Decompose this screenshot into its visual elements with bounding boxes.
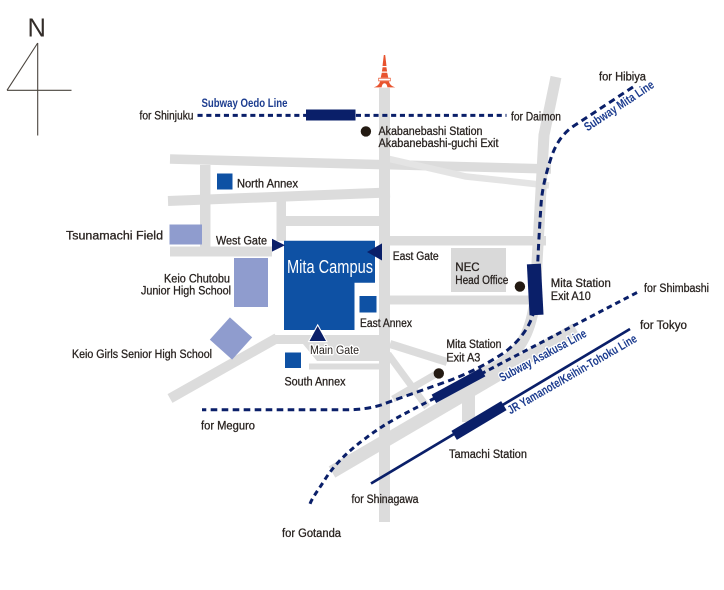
svg-text:Akabanebashi Station: Akabanebashi Station <box>379 126 483 138</box>
svg-text:Mita Station: Mita Station <box>551 278 611 290</box>
svg-text:Akabanebashi-guchi Exit: Akabanebashi-guchi Exit <box>379 138 500 150</box>
svg-text:North Annex: North Annex <box>237 179 298 191</box>
svg-text:Subway Oedo Line: Subway Oedo Line <box>202 96 288 110</box>
svg-text:for Hibiya: for Hibiya <box>599 72 647 84</box>
svg-text:South Annex: South Annex <box>285 377 346 389</box>
svg-text:Keio Girls Senior High School: Keio Girls Senior High School <box>72 349 212 361</box>
svg-text:Main Gate: Main Gate <box>310 345 359 357</box>
svg-text:Mita Station: Mita Station <box>446 339 501 351</box>
svg-text:Head Office: Head Office <box>455 275 508 287</box>
svg-text:for Shinjuku: for Shinjuku <box>140 111 194 123</box>
svg-text:Keio Chutobu: Keio Chutobu <box>164 274 230 286</box>
svg-text:for Tokyo: for Tokyo <box>640 320 687 332</box>
svg-text:for Shimbashi: for Shimbashi <box>644 283 709 295</box>
svg-text:for Gotanda: for Gotanda <box>282 528 342 540</box>
svg-text:Exit A3: Exit A3 <box>446 353 480 365</box>
svg-text:West Gate: West Gate <box>216 236 267 248</box>
svg-text:Tsunamachi Field: Tsunamachi Field <box>66 231 163 243</box>
svg-text:Tamachi Station: Tamachi Station <box>449 449 527 461</box>
svg-text:East Gate: East Gate <box>393 251 439 263</box>
svg-text:N: N <box>28 15 46 43</box>
svg-text:for Meguro: for Meguro <box>201 421 255 433</box>
svg-text:Junior High School: Junior High School <box>141 286 231 298</box>
svg-text:East Annex: East Annex <box>360 318 412 330</box>
svg-text:Mita Campus: Mita Campus <box>287 257 373 277</box>
svg-text:for Shinagawa: for Shinagawa <box>352 494 420 506</box>
svg-text:for Daimon: for Daimon <box>511 112 561 124</box>
svg-text:Exit A10: Exit A10 <box>551 291 591 303</box>
svg-text:NEC: NEC <box>455 262 479 274</box>
